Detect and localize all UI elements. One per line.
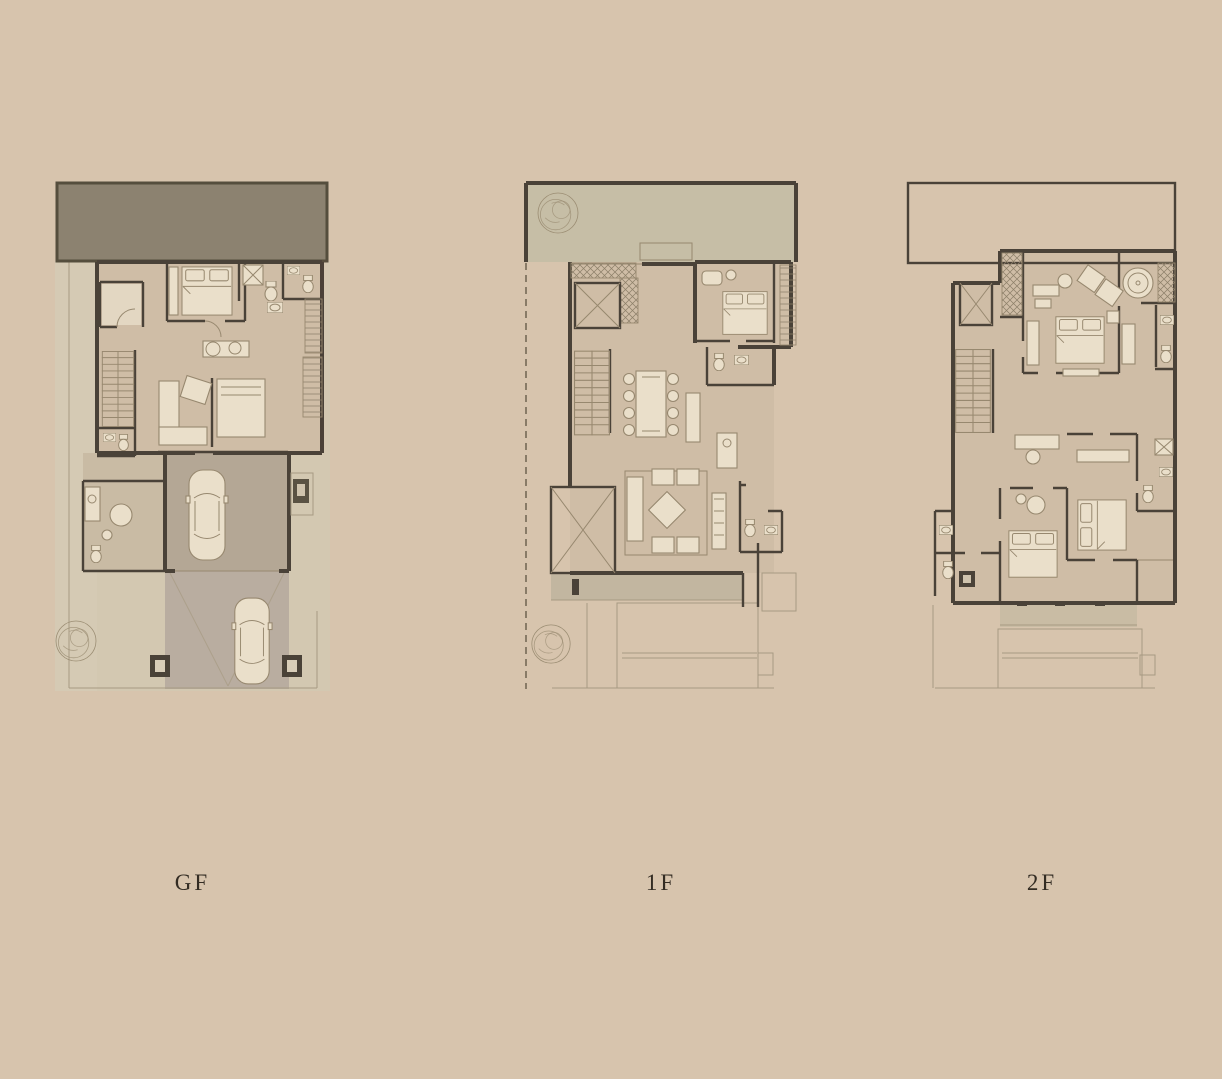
toilet-icon [265, 281, 277, 301]
armchair-icon [677, 537, 699, 553]
bed-icon [1056, 317, 1104, 363]
floorplan-gf-drawing [55, 181, 330, 693]
armchair-icon [677, 469, 699, 485]
bed-icon [182, 267, 232, 315]
floor-label-gf: GF [55, 866, 330, 900]
closet-shelves [780, 265, 796, 345]
counter-icon [717, 433, 737, 468]
floor-label-2f: 2F [905, 866, 1179, 900]
toilet-icon [943, 561, 954, 579]
bed-icon [1078, 500, 1126, 550]
wardrobe-icon [1027, 321, 1039, 365]
gf-foyer [102, 284, 141, 325]
chair-icon [1026, 450, 1040, 464]
2f-site [933, 251, 1175, 688]
gf-closet-shelves [305, 299, 322, 353]
gf-closet-shelves [303, 357, 322, 417]
gf-roof-band [57, 183, 327, 261]
floor-label-1f: 1F [524, 866, 798, 900]
sink-icon [287, 266, 300, 275]
sink-icon [734, 355, 749, 365]
toilet-icon [714, 353, 725, 371]
toilet-icon [1143, 485, 1154, 503]
floorplan-1f [524, 181, 798, 693]
toilet-icon [91, 545, 102, 563]
toilet-icon [745, 519, 756, 537]
floorplan-2f-drawing [905, 181, 1179, 693]
armchair-icon [652, 469, 674, 485]
1f-column [572, 579, 579, 595]
sofa-icon [159, 427, 207, 445]
sink-icon [267, 302, 283, 313]
bed-icon [1009, 531, 1057, 577]
floorplan-2f [905, 181, 1179, 693]
sink-icon [1160, 315, 1174, 325]
island-icon [686, 393, 700, 442]
floorplan-gf [55, 181, 330, 693]
armchair-icon [652, 537, 674, 553]
tree-icon [532, 625, 570, 663]
tv-console-icon [712, 493, 726, 549]
floorplan-sheet: { "page": { "background": "#d7c4ad" }, "… [0, 0, 1222, 1079]
armchair-icon [702, 271, 722, 285]
toilet-icon [1161, 345, 1172, 363]
wardrobe-icon [169, 267, 178, 315]
sofa-icon [627, 477, 643, 541]
sink-icon [939, 525, 953, 535]
car-icon [232, 598, 272, 684]
toilet-icon [303, 275, 314, 293]
car-icon [186, 470, 228, 560]
sink-icon [764, 525, 778, 535]
dining-table-icon [636, 371, 666, 437]
daybed-icon [217, 379, 265, 437]
bed-icon [723, 292, 767, 335]
sink-icon [1159, 467, 1173, 477]
wardrobe-icon [1077, 450, 1129, 462]
2f-walkin-closet [1002, 253, 1022, 315]
floorplan-1f-drawing [524, 181, 798, 693]
desk-icon [1015, 435, 1059, 449]
gf-vanity [203, 341, 249, 357]
